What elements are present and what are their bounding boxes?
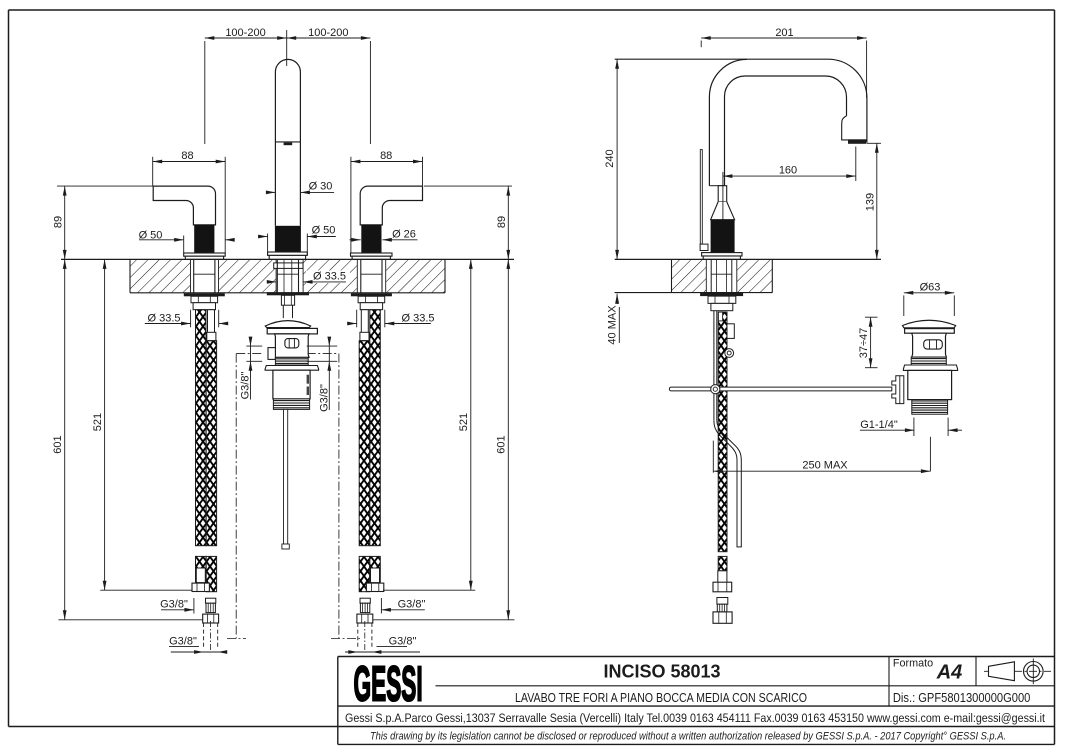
svg-text:Ø 33.5: Ø 33.5 [147, 313, 180, 325]
svg-text:89: 89 [496, 216, 508, 228]
svg-text:250 MAX: 250 MAX [802, 460, 848, 472]
svg-text:160: 160 [779, 165, 797, 177]
svg-text:601: 601 [496, 435, 508, 453]
svg-text:100-200: 100-200 [225, 27, 265, 39]
svg-text:139: 139 [865, 193, 877, 211]
svg-text:601: 601 [52, 435, 64, 453]
svg-text:Gessi S.p.A.Parco Gessi,13037: Gessi S.p.A.Parco Gessi,13037 Serravalle… [345, 711, 1046, 725]
svg-text:LAVABO TRE FORI A PIANO BOCCA: LAVABO TRE FORI A PIANO BOCCA MEDIA CON … [515, 690, 807, 705]
svg-text:G3/8": G3/8" [389, 635, 417, 647]
svg-text:201: 201 [775, 27, 793, 39]
svg-text:Dis.: GPF5801300000G000: Dis.: GPF5801300000G000 [893, 690, 1031, 705]
svg-text:Ø 30: Ø 30 [309, 180, 333, 192]
svg-text:37÷47: 37÷47 [858, 328, 870, 359]
svg-text:G3/8": G3/8" [169, 635, 197, 647]
svg-text:Ø 33.5: Ø 33.5 [313, 270, 346, 282]
svg-text:Formato: Formato [893, 658, 933, 670]
svg-text:G3/8": G3/8" [398, 599, 426, 611]
svg-text:G3/8": G3/8" [239, 372, 251, 400]
svg-text:G3/8": G3/8" [318, 384, 330, 412]
svg-text:INCISO 58013: INCISO 58013 [603, 662, 720, 682]
svg-text:40 MAX: 40 MAX [607, 305, 619, 345]
svg-text:88: 88 [380, 150, 392, 162]
svg-text:Ø 26: Ø 26 [392, 228, 416, 240]
svg-text:This drawing by its legislatio: This drawing by its legislation cannot b… [370, 731, 1006, 743]
svg-text:521: 521 [458, 413, 470, 431]
svg-text:88: 88 [181, 150, 193, 162]
svg-text:A4: A4 [936, 661, 963, 683]
svg-text:G3/8": G3/8" [160, 599, 188, 611]
svg-text:Ø63: Ø63 [920, 282, 941, 294]
svg-text:Ø 33.5: Ø 33.5 [401, 313, 434, 325]
svg-text:G1-1/4": G1-1/4" [860, 419, 898, 431]
svg-text:240: 240 [604, 149, 616, 167]
svg-text:89: 89 [53, 216, 65, 228]
svg-text:GESSI: GESSI [354, 658, 423, 712]
svg-text:521: 521 [92, 413, 104, 431]
svg-text:100-200: 100-200 [308, 27, 348, 39]
svg-text:Ø 50: Ø 50 [312, 225, 336, 237]
